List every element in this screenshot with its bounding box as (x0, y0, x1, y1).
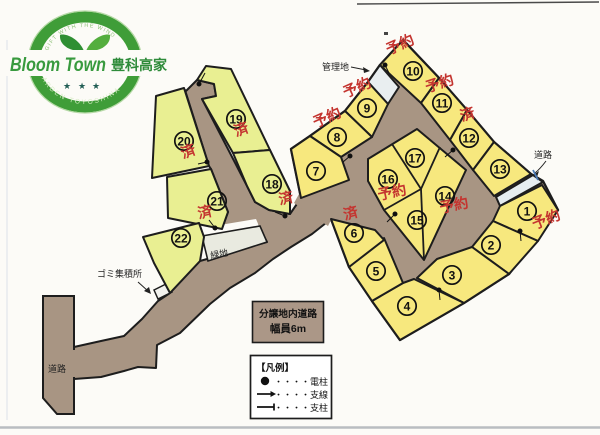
svg-text:1: 1 (524, 204, 531, 218)
svg-text:道路: 道路 (534, 149, 552, 160)
svg-text:6: 6 (351, 226, 358, 240)
svg-text:22: 22 (174, 231, 188, 245)
svg-text:★: ★ (92, 81, 100, 91)
svg-text:9: 9 (364, 101, 371, 115)
svg-text:道路: 道路 (48, 363, 66, 374)
svg-text:3: 3 (449, 268, 456, 282)
svg-text:17: 17 (408, 151, 422, 165)
svg-text:21: 21 (210, 194, 224, 208)
svg-text:【凡例】: 【凡例】 (256, 362, 294, 374)
svg-text:豊科高家: 豊科高家 (111, 57, 168, 73)
svg-text:12: 12 (462, 131, 476, 145)
svg-text:幅員6m: 幅員6m (270, 322, 306, 335)
svg-text:・・・・支柱: ・・・・支柱 (274, 402, 328, 413)
svg-text:・・・・電柱: ・・・・電柱 (274, 376, 328, 387)
svg-text:2: 2 (488, 238, 495, 252)
svg-text:★: ★ (63, 81, 71, 91)
svg-text:7: 7 (313, 164, 320, 178)
svg-text:8: 8 (334, 130, 341, 144)
svg-text:4: 4 (404, 299, 411, 313)
svg-text:Bloom Town: Bloom Town (10, 55, 106, 76)
svg-text:13: 13 (493, 162, 507, 176)
svg-text:10: 10 (406, 64, 420, 78)
svg-text:18: 18 (265, 177, 279, 191)
svg-text:★: ★ (78, 81, 86, 91)
svg-text:管理地: 管理地 (322, 61, 349, 72)
svg-text:分譲地内道路: 分譲地内道路 (259, 307, 317, 320)
svg-text:11: 11 (436, 96, 449, 110)
svg-text:・・・・支線: ・・・・支線 (274, 389, 328, 400)
svg-text:5: 5 (373, 264, 380, 278)
svg-text:15: 15 (410, 213, 424, 227)
svg-text:ゴミ集積所: ゴミ集積所 (97, 268, 142, 279)
